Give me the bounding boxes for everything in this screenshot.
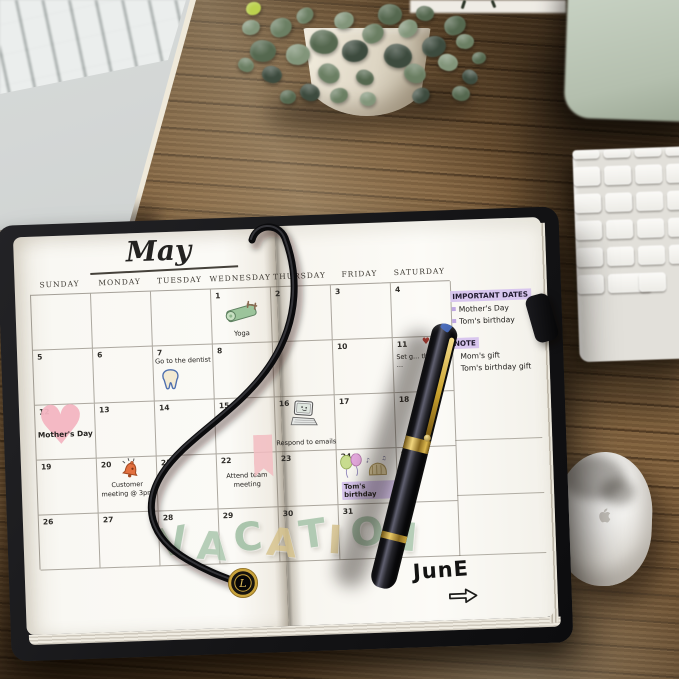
calendar-cell-empty xyxy=(31,294,93,351)
note-item: Tom's birthday gift xyxy=(461,361,539,373)
vacation-letter: T xyxy=(297,510,330,558)
calendar-cell-27: 27 xyxy=(99,511,161,568)
date-number: 8 xyxy=(217,346,223,355)
keyboard-key xyxy=(635,164,663,184)
date-number: 22 xyxy=(221,456,232,465)
monitor-corner xyxy=(563,0,679,122)
date-number: 15 xyxy=(219,401,230,410)
keyboard-key xyxy=(606,219,634,239)
weekday-header-wednesday: WEDNESDAY xyxy=(209,272,269,283)
calendar-entry-1: Yoga xyxy=(212,328,271,338)
keyboard-key xyxy=(668,217,679,237)
vacation-letter: C xyxy=(231,514,264,562)
date-number: 21 xyxy=(161,458,172,467)
calendar-cell-26: 26 xyxy=(39,514,101,571)
month-title: May xyxy=(83,232,234,270)
calendar-cell-10: 10 xyxy=(333,338,395,395)
desk-scene: May SUNDAYMONDAYTUESDAYWEDNESDAYTHURSDAY… xyxy=(0,0,679,679)
planner-notebook: May SUNDAYMONDAYTUESDAYWEDNESDAYTHURSDAY… xyxy=(0,206,573,661)
calendar-cell-14: 14 xyxy=(155,399,217,456)
calendar-cell-9: 9 xyxy=(273,340,335,397)
keyboard-key xyxy=(667,190,679,210)
keyboard-key xyxy=(636,191,664,211)
date-number: 23 xyxy=(281,454,292,463)
keyboard-key xyxy=(574,193,602,213)
date-number: 27 xyxy=(103,515,114,524)
calendar-cell-20: 20Customer meeting @ 3pm xyxy=(97,456,159,513)
date-number: 2 xyxy=(275,289,281,298)
date-number: 30 xyxy=(283,509,294,518)
date-number: 5 xyxy=(37,352,43,361)
date-number: 9 xyxy=(277,344,283,353)
leaf-shadow xyxy=(601,478,636,505)
calendar-cell-7: 7Go to the dentist xyxy=(153,344,215,401)
calendar-cell-13: 13 xyxy=(95,402,157,459)
calendar-cell-2: 2 xyxy=(271,285,333,342)
date-number: 26 xyxy=(43,517,54,526)
vacation-letter: A xyxy=(265,520,300,568)
calendar-cell-1: 1Yoga xyxy=(211,287,273,344)
calendar-cell-8: 8 xyxy=(213,342,275,399)
date-number: 14 xyxy=(159,403,170,412)
date-number: 17 xyxy=(339,397,350,406)
weekday-header-tuesday: TUESDAY xyxy=(149,275,209,286)
alarm-bell-icon xyxy=(120,457,142,482)
weekday-header-friday: FRIDAY xyxy=(329,268,389,279)
calendar-cell-3: 3 xyxy=(331,283,393,340)
calendar-cell-19: 19 xyxy=(37,459,99,516)
vacation-letter: A xyxy=(195,524,228,571)
keyboard-key xyxy=(605,192,633,212)
weekday-header-thursday: THURSDAY xyxy=(269,270,329,281)
keyboard-key xyxy=(572,149,599,159)
pink-heart-sticker-icon: ♥ xyxy=(36,398,86,454)
calendar-entry-22: Attend team meeting xyxy=(219,470,275,490)
date-number: 4 xyxy=(395,285,401,294)
important-dates-title: IMPORTANT DATES xyxy=(450,288,531,302)
keyboard-key xyxy=(607,246,635,266)
laptop-doodle-icon xyxy=(288,400,321,431)
apple-logo-icon xyxy=(595,508,613,533)
keyboard-key xyxy=(634,147,661,157)
calendar-cell-12: 12♥Mother's Day xyxy=(35,404,97,461)
keyboard-key xyxy=(638,245,666,265)
calendar-entry-16: Respond to emails xyxy=(275,437,337,447)
keyboard-key xyxy=(637,218,665,238)
right-arrow-icon xyxy=(447,585,480,610)
wireless-keyboard xyxy=(572,146,679,362)
date-number: 7 xyxy=(157,348,163,357)
tooth-icon xyxy=(161,369,181,394)
calendar-cell-16: 16Respond to emails xyxy=(275,395,337,452)
calendar-cell-empty xyxy=(91,292,153,349)
date-number: 10 xyxy=(337,342,348,351)
weekday-header-saturday: SATURDAY xyxy=(389,266,449,277)
weekday-header-monday: MONDAY xyxy=(89,277,149,288)
keyboard-key xyxy=(575,220,603,240)
note-list: Mom's giftTom's birthday gift xyxy=(452,349,539,373)
important-dates-list: Mother's DayTom's birthday xyxy=(451,302,538,326)
date-number: 1 xyxy=(215,291,221,300)
calendar-entry-7: Go to the dentist xyxy=(153,355,212,365)
date-number: 20 xyxy=(101,460,112,469)
keyboard-key xyxy=(603,148,630,158)
yoga-mat-icon xyxy=(222,299,261,328)
note-item: Tom's birthday xyxy=(459,314,537,326)
calendar-cell-21: 21 xyxy=(157,454,219,511)
keyboard-key xyxy=(577,274,605,294)
calendar-entry-20: Customer meeting @ 3pm xyxy=(98,480,158,499)
calendar-cell-empty xyxy=(151,289,213,346)
pen-gold-ring xyxy=(380,530,407,543)
keyboard-key xyxy=(604,165,632,185)
date-number: 19 xyxy=(41,462,52,471)
keyboard-key xyxy=(666,163,679,183)
keyboard-key xyxy=(639,272,667,292)
calendar-cell-6: 6 xyxy=(93,347,155,404)
keyboard-key xyxy=(573,166,601,186)
keyboard-key xyxy=(665,146,679,156)
note-item: Mom's gift xyxy=(460,349,538,361)
date-number: 13 xyxy=(99,405,110,414)
weekday-header-sunday: SUNDAY xyxy=(29,279,89,290)
calendar-cell-23: 23 xyxy=(277,450,339,507)
date-number: 6 xyxy=(97,350,103,359)
balloons-icon xyxy=(339,453,365,484)
keyboard-key xyxy=(669,244,679,264)
keyboard-key xyxy=(576,247,604,267)
notes-panel: IMPORTANT DATES Mother's DayTom's birthd… xyxy=(450,281,539,376)
date-number: 3 xyxy=(335,287,341,296)
